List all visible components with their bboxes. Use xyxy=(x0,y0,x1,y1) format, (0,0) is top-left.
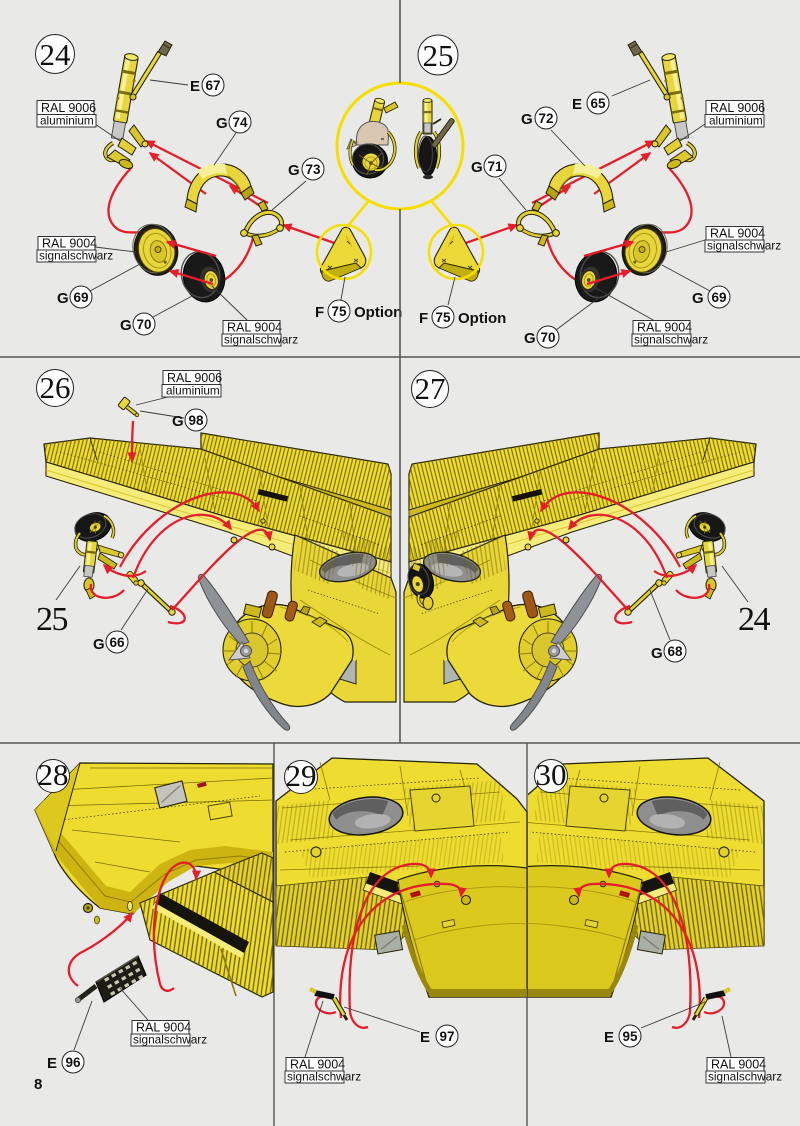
svg-text:29: 29 xyxy=(286,758,317,793)
svg-text:G: G xyxy=(172,413,184,430)
svg-text:70: 70 xyxy=(136,317,151,332)
svg-text:G: G xyxy=(471,159,483,176)
svg-text:69: 69 xyxy=(73,290,88,305)
svg-text:signalschwarz: signalschwarz xyxy=(224,333,298,347)
svg-text:G: G xyxy=(651,645,663,662)
svg-text:72: 72 xyxy=(538,111,553,126)
svg-text:G: G xyxy=(288,162,300,179)
svg-text:G: G xyxy=(120,317,132,334)
svg-text:G: G xyxy=(93,636,105,653)
svg-text:aluminium: aluminium xyxy=(709,114,763,128)
svg-text:75: 75 xyxy=(435,310,451,325)
svg-text:8: 8 xyxy=(34,1076,42,1093)
svg-text:E: E xyxy=(604,1029,614,1046)
svg-text:65: 65 xyxy=(590,96,606,111)
svg-text:E: E xyxy=(47,1055,57,1072)
svg-text:30: 30 xyxy=(536,757,567,792)
svg-text:98: 98 xyxy=(188,413,204,428)
svg-text:Option: Option xyxy=(354,304,402,321)
svg-text:G: G xyxy=(521,111,533,128)
svg-text:74: 74 xyxy=(232,115,248,130)
svg-text:F: F xyxy=(315,304,324,321)
svg-text:F: F xyxy=(419,310,428,327)
svg-text:67: 67 xyxy=(205,78,220,93)
svg-text:24: 24 xyxy=(40,37,72,72)
svg-text:G: G xyxy=(57,290,69,307)
svg-text:96: 96 xyxy=(65,1055,81,1070)
svg-text:25: 25 xyxy=(423,38,454,73)
svg-text:26: 26 xyxy=(40,370,71,405)
svg-text:E: E xyxy=(572,96,582,113)
svg-text:75: 75 xyxy=(331,304,347,319)
svg-text:69: 69 xyxy=(711,290,726,305)
svg-text:66: 66 xyxy=(109,635,125,650)
svg-text:73: 73 xyxy=(305,162,321,177)
svg-text:signalschwarz: signalschwarz xyxy=(708,1070,782,1084)
svg-text:97: 97 xyxy=(439,1029,454,1044)
svg-text:G: G xyxy=(216,115,228,132)
svg-text:71: 71 xyxy=(487,159,503,174)
svg-text:68: 68 xyxy=(667,644,683,659)
svg-text:G: G xyxy=(524,330,536,347)
svg-text:signalschwarz: signalschwarz xyxy=(39,249,113,263)
svg-text:signalschwarz: signalschwarz xyxy=(133,1033,207,1047)
svg-text:aluminium: aluminium xyxy=(166,384,220,398)
svg-text:95: 95 xyxy=(622,1029,638,1044)
svg-text:signalschwarz: signalschwarz xyxy=(287,1070,361,1084)
svg-text:25: 25 xyxy=(36,601,68,638)
svg-text:Option: Option xyxy=(458,310,506,327)
svg-text:28: 28 xyxy=(38,757,69,792)
svg-text:aluminium: aluminium xyxy=(40,114,94,128)
svg-text:27: 27 xyxy=(415,371,446,406)
svg-text:E: E xyxy=(190,78,200,95)
svg-text:E: E xyxy=(420,1029,430,1046)
svg-text:signalschwarz: signalschwarz xyxy=(634,333,708,347)
svg-text:G: G xyxy=(692,290,704,307)
svg-text:70: 70 xyxy=(540,330,555,345)
svg-text:signalschwarz: signalschwarz xyxy=(707,239,781,253)
svg-text:24: 24 xyxy=(738,601,771,638)
